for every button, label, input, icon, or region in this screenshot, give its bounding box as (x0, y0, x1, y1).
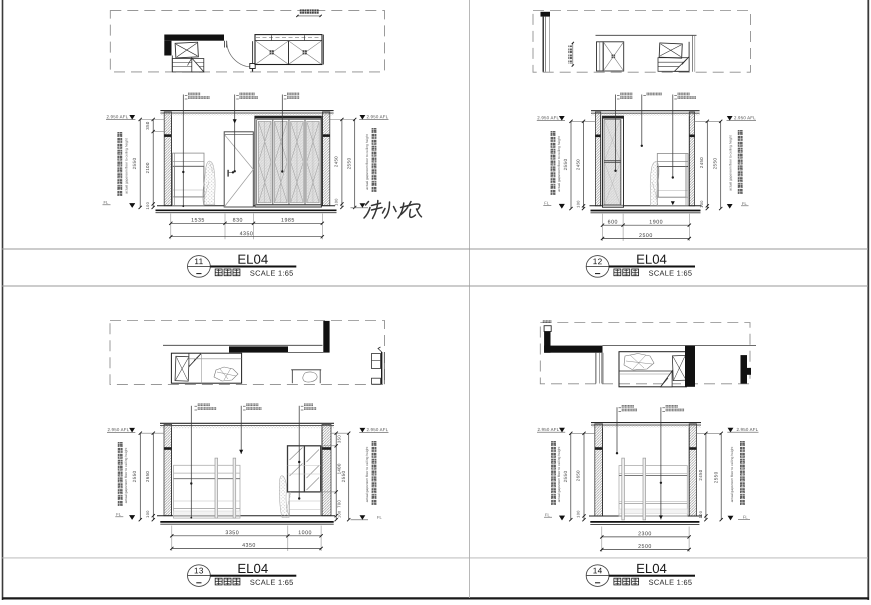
svg-text:FL: FL (377, 515, 382, 520)
svg-text:2550: 2550 (132, 470, 137, 482)
svg-text:1900: 1900 (649, 219, 663, 225)
svg-text:2.950 AFL: 2.950 AFL (107, 427, 129, 432)
svg-text:14: 14 (593, 566, 603, 575)
svg-text:2.950 AFL: 2.950 AFL (736, 427, 758, 432)
svg-text:12: 12 (593, 257, 603, 266)
svg-text:2550: 2550 (132, 158, 137, 170)
svg-text:2650: 2650 (576, 470, 581, 481)
svg-text:1000: 1000 (298, 530, 312, 536)
svg-text:350: 350 (145, 121, 150, 130)
svg-text:SCALE 1:65: SCALE 1:65 (649, 269, 693, 278)
svg-text:100: 100 (575, 200, 580, 208)
svg-text:4350: 4350 (240, 231, 254, 237)
svg-text:700: 700 (337, 499, 342, 507)
svg-text:100: 100 (334, 198, 339, 206)
svg-text:actual gapsroom floor to ceili: actual gapsroom floor to ceiling height (557, 136, 561, 192)
svg-text:actual gapsroom floor to ceili: actual gapsroom floor to ceiling height (365, 447, 369, 503)
svg-text:2.950 AFL: 2.950 AFL (537, 115, 559, 120)
svg-text:2450: 2450 (575, 159, 580, 170)
svg-text:2550: 2550 (346, 158, 351, 170)
svg-text:2550: 2550 (341, 470, 346, 482)
svg-text:100: 100 (698, 510, 703, 518)
svg-text:EL04: EL04 (636, 561, 667, 576)
svg-text:2450: 2450 (699, 157, 704, 168)
svg-text:2650: 2650 (145, 471, 150, 482)
svg-text:actual gapsroom floor to ceili: actual gapsroom floor to ceiling height (557, 447, 561, 503)
svg-text:2500: 2500 (639, 233, 653, 239)
svg-text:EL04: EL04 (237, 252, 268, 267)
svg-text:100: 100 (145, 510, 150, 518)
svg-text:actual gapsroom floor to ceili: actual gapsroom floor to ceiling height (125, 138, 129, 194)
svg-text:actual gapsroom floor to ceili: actual gapsroom floor to ceiling height (730, 447, 734, 503)
svg-text:FL: FL (103, 200, 108, 205)
svg-text:4350: 4350 (242, 543, 256, 549)
svg-text:2.950 AFL: 2.950 AFL (366, 114, 388, 119)
svg-text:3350: 3350 (225, 530, 239, 536)
svg-text:2500: 2500 (638, 544, 652, 550)
svg-text:2550: 2550 (563, 471, 568, 483)
svg-text:SCALE 1:65: SCALE 1:65 (250, 269, 294, 278)
svg-text:350: 350 (337, 435, 342, 443)
svg-text:SCALE 1:65: SCALE 1:65 (649, 578, 693, 587)
svg-text:11: 11 (194, 257, 203, 266)
svg-text:FL: FL (545, 512, 550, 517)
svg-text:FL: FL (743, 515, 748, 520)
svg-text:FL: FL (742, 201, 747, 206)
svg-text:2550: 2550 (713, 471, 718, 483)
svg-text:2100: 2100 (145, 162, 150, 173)
svg-text:2.950 AFL: 2.950 AFL (366, 427, 388, 432)
svg-text:100: 100 (338, 510, 342, 518)
svg-text:13: 13 (194, 566, 204, 575)
svg-text:actual gapsroom floor to ceili: actual gapsroom floor to ceiling height (365, 134, 369, 190)
svg-text:1535: 1535 (191, 218, 205, 224)
svg-text:1985: 1985 (281, 218, 295, 224)
svg-text:2550: 2550 (563, 159, 568, 171)
svg-text:2450: 2450 (334, 156, 339, 167)
svg-text:2450: 2450 (698, 469, 703, 480)
svg-text:2.950 AFL: 2.950 AFL (734, 115, 756, 120)
svg-text:830: 830 (233, 218, 243, 224)
svg-text:2550: 2550 (713, 158, 718, 170)
svg-text:actual gapsroom floor to ceili: actual gapsroom floor to ceiling height (124, 448, 128, 504)
svg-text:2300: 2300 (638, 531, 652, 537)
svg-text:100: 100 (699, 200, 704, 208)
svg-text:actual gapsroom floor to ceili: actual gapsroom floor to ceiling height (729, 135, 733, 191)
svg-text:FL: FL (116, 512, 121, 517)
svg-text:EL04: EL04 (237, 561, 268, 576)
svg-text:2.950 AFL: 2.950 AFL (106, 114, 128, 119)
svg-text:100: 100 (145, 201, 150, 209)
svg-text:EL04: EL04 (636, 252, 667, 267)
svg-text:2.950 AFL: 2.950 AFL (537, 427, 559, 432)
svg-text:600: 600 (608, 219, 618, 225)
svg-text:FL: FL (544, 201, 549, 206)
svg-text:100: 100 (576, 510, 581, 518)
svg-text:SCALE 1:65: SCALE 1:65 (250, 578, 294, 587)
